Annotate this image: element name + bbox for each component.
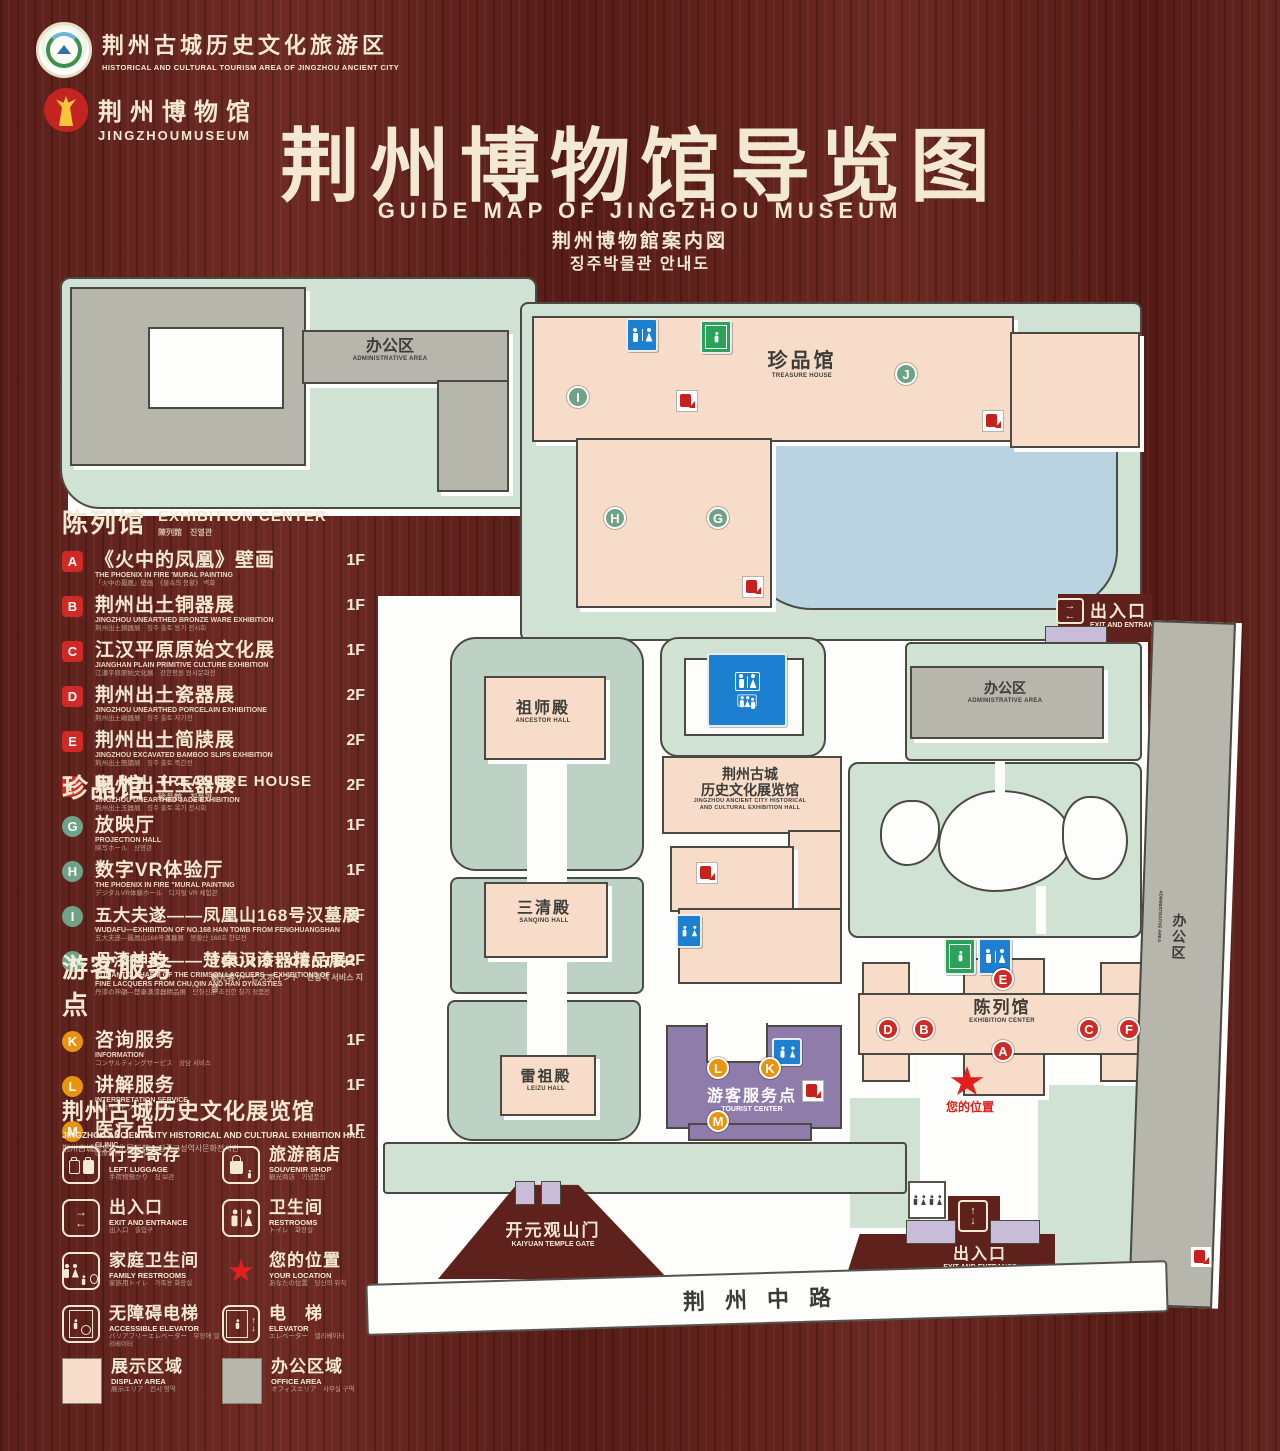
facility-elevator: ↑↓ 电 梯ELEVATORエレベーター 엘리베이터 (222, 1305, 384, 1349)
map-marker-I: I (567, 386, 589, 408)
kaiyuan-gate-pillar-e (541, 1181, 561, 1205)
office-area-swatch (222, 1358, 262, 1404)
admin-area-nw-label: 办公区 ADMINISTRATIVE AREA (330, 338, 450, 363)
admin-building-nw-arm (437, 380, 509, 492)
garden-path-s (1036, 886, 1046, 934)
kaiyuan-gate-pillar-w (515, 1181, 535, 1205)
page-title-ja: 荆州博物館案内図 (0, 226, 1280, 253)
restroom-sign-treasure (626, 318, 658, 352)
treasure-house-east-wing (1010, 332, 1140, 448)
legend-item-E: E荆州出土简牍展JINGZHOU EXCAVATED BAMBOO SLIPS … (62, 730, 367, 768)
kaiyuan-gate-label: 开元观山门 KAIYUAN TEMPLE GATE (468, 1216, 638, 1248)
fire-extinguisher-icon (802, 1080, 824, 1102)
area-office: 办公区域OFFICE AREAオフィスエリア 사무실 구역 (222, 1358, 384, 1404)
elevator-icon: ↑↓ (222, 1305, 260, 1343)
legend-item-G: G放映厅PROJECTION HALL映写ホール 상영관1F (62, 815, 367, 853)
souvenir-shop-icon (222, 1146, 260, 1184)
fire-extinguisher-icon (696, 862, 718, 884)
tourism-area-subtitle: HISTORICAL AND CULTURAL TOURISM AREA OF … (102, 63, 399, 72)
south-mint-band (383, 1142, 907, 1194)
temple-path-1 (527, 753, 567, 883)
map-marker-D: D (877, 1018, 899, 1040)
map-marker-L: L (707, 1057, 729, 1079)
map-marker-A: A (992, 1040, 1014, 1062)
exhibition-center-label: 陈列馆 EXHIBITION CENTER (940, 998, 1064, 1025)
your-location-icon (222, 1252, 260, 1290)
family-restroom-icon (62, 1252, 100, 1290)
tourism-area-logo-icon (36, 22, 92, 78)
admin-area-e-label: 办公区 ADMINISTRATIVE AREA (945, 680, 1065, 705)
map-marker-C: C (1078, 1018, 1100, 1040)
legend-item-I: I五大夫遂——凤凰山168号汉墓展WUDAFU—EXHIBITION OF NO… (62, 905, 367, 943)
tourism-area-title: 荆州古城历史文化旅游区 (102, 28, 399, 60)
exhibition-hall-south (678, 908, 842, 984)
legend-facilities: 行李寄存LEFT LUGGAGE手荷物預かり 짐 보관 旅游商店SOUVENIR… (62, 1146, 384, 1404)
guide-map-poster: 荆州古城历史文化旅游区 HISTORICAL AND CULTURAL TOUR… (0, 0, 1280, 1451)
admin-courtyard-nw (148, 327, 284, 409)
fire-extinguisher-icon (982, 410, 1004, 432)
exhibition-hall-mid (670, 846, 794, 912)
facility-souvenir-shop: 旅游商店SOUVENIR SHOP観光商店 기념품점 (222, 1146, 384, 1190)
fire-extinguisher-icon (1190, 1246, 1212, 1268)
legend-item-K: K咨询服务INFORMATIONコンサルティングサービス 상담 서비스1F (62, 1030, 367, 1068)
facility-left-luggage: 行李寄存LEFT LUGGAGE手荷物預かり 짐 보관 (62, 1146, 222, 1190)
map-marker-H: H (604, 507, 626, 529)
left-luggage-icon (62, 1146, 100, 1184)
restroom-family-sign (707, 653, 787, 727)
area-display: 展示区域DISPLAY AREA展示エリア 전시 영역 (62, 1358, 222, 1404)
facility-accessible-elevator: 无障碍电梯ACCESSIBLE ELEVATORバリアフリーエレベーター 무장애… (62, 1305, 222, 1349)
facility-family-restrooms: 家庭卫生间FAMILY RESTROOMS家族用トイレ 가족용 화장실 (62, 1252, 222, 1296)
legend-item-B: B荆州出土铜器展JINGZHOU UNEARTHED BRONZE WARE E… (62, 595, 367, 633)
map-marker-F: F (1118, 1018, 1140, 1040)
garden-path-n (995, 762, 1005, 796)
tourism-area-logo-text: 荆州古城历史文化旅游区 HISTORICAL AND CULTURAL TOUR… (102, 28, 399, 72)
elevator-sign-treasure (700, 320, 732, 354)
display-area-swatch (62, 1358, 102, 1404)
facility-exit-entrance: →← 出入口EXIT AND ENTRANCE出入口 출입구 (62, 1199, 222, 1243)
map-marker-M: M (707, 1110, 729, 1132)
admin-strip-label: 办公区 (1168, 913, 1190, 962)
tourist-center-step (688, 1123, 812, 1141)
restroom-sign-se (908, 1181, 946, 1219)
legend-item-A: A《火中的凤凰》壁画THE PHOENIX IN FIRE 'MURAL PAI… (62, 550, 367, 588)
exhibition-hall-label: 荆州古城 历史文化展览馆 JINGZHOU ANCIENT CITY HISTO… (666, 766, 834, 811)
legend-item-D: D荆州出土瓷器展JINGZHOU UNEARTHED PORCELAIN EXH… (62, 685, 367, 723)
map-marker-E: E (992, 968, 1014, 990)
legend-item-H: H数字VR体验厅THE PHOENIX IN FIRE "MURAL PAINT… (62, 860, 367, 898)
facility-restrooms: 卫生间RESTROOMSトイレ 화장실 (222, 1199, 384, 1243)
map-marker-K: K (759, 1057, 781, 1079)
restroom-sign-hall (676, 914, 702, 948)
ancestor-hall-label: 祖师殿 ANCESTOR HALL (489, 700, 597, 725)
leizu-hall-label: 雷祖殿 LEIZU HALL (500, 1068, 592, 1093)
page-title-en: GUIDE MAP OF JINGZHOU MUSEUM (0, 198, 1280, 224)
treasure-house-label: 珍品馆 TREASURE HOUSE (742, 350, 862, 380)
your-location-label: 您的位置 (930, 1098, 1010, 1115)
sanqing-hall-label: 三清殿 SANQING HALL (489, 900, 599, 925)
map-marker-J: J (895, 363, 917, 385)
temple-path-2 (527, 950, 567, 1060)
facility-your-location: 您的位置YOUR LOCATIONあなたの位置 당신의 위치 (222, 1252, 384, 1296)
page-title-ko: 징주박물관 안내도 (0, 250, 1280, 274)
section-title: 陈列馆 (62, 503, 146, 540)
map-marker-B: B (913, 1018, 935, 1040)
fire-extinguisher-icon (742, 576, 764, 598)
elevator-se-icon: ↑↓ (958, 1200, 988, 1232)
map-marker-G: G (707, 507, 729, 529)
restroom-icon (222, 1199, 260, 1237)
exit-entrance-icon: →← (62, 1199, 100, 1237)
elevator-sign-exhibition (944, 938, 976, 975)
admin-strip-label-en: ADMINISTRATIVE AREA (1157, 890, 1164, 942)
accessible-elevator-icon (62, 1305, 100, 1343)
exit-entrance-ne-icon: →← (1056, 598, 1084, 624)
road-label: 荆州中路 (683, 1280, 852, 1317)
fire-extinguisher-icon (676, 390, 698, 412)
legend-item-C: C江汉平原原始文化展JIANGHAN PLAIN PRIMITIVE CULTU… (62, 640, 367, 678)
